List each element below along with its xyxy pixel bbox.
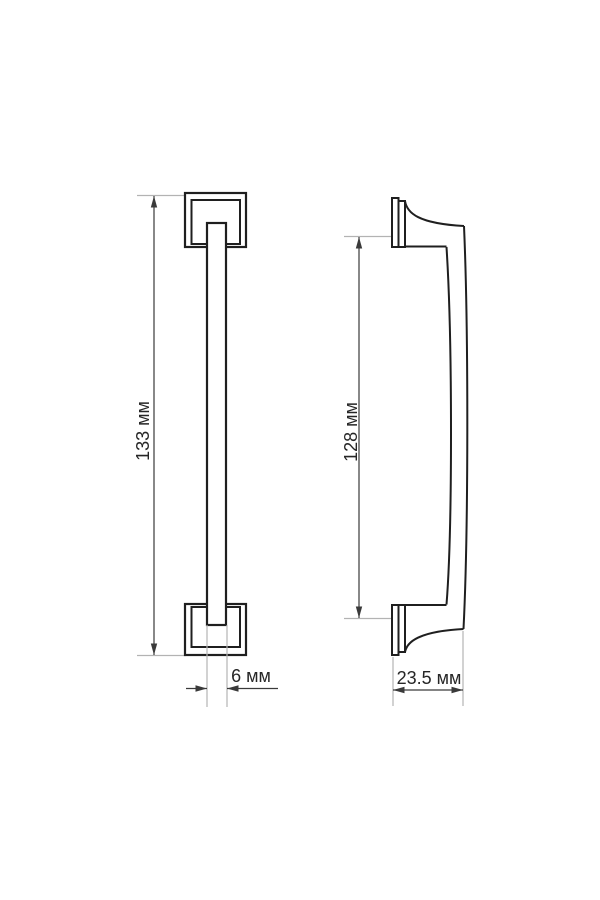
bar-width-dimension-label: 6 мм [231, 666, 271, 686]
height-dimension-label: 133 мм [133, 401, 153, 461]
arrow-right-icon [196, 685, 208, 691]
handle-dimension-drawing: 133 мм 6 мм [0, 0, 600, 900]
height-dimension: 133 мм [133, 196, 186, 656]
handle-bar [207, 223, 226, 625]
side-view: 128 мм [341, 198, 467, 706]
arrow-up-icon [151, 196, 157, 208]
top-cove-curve [405, 201, 464, 226]
handle-profile [392, 198, 467, 655]
span-dimension: 128 мм [341, 237, 392, 619]
depth-dimension-label: 23.5 мм [397, 668, 462, 688]
technical-drawing-canvas: 133 мм 6 мм [0, 0, 600, 900]
inner-edge [447, 247, 452, 605]
bottom-plate-strip-inner [399, 605, 406, 652]
arrow-up-icon [356, 237, 362, 249]
span-dimension-label: 128 мм [341, 402, 361, 462]
arrow-left-icon [227, 685, 239, 691]
arrow-down-icon [356, 607, 362, 619]
arrow-down-icon [151, 644, 157, 656]
bottom-cove-curve [405, 629, 464, 652]
top-plate-strip-inner [399, 201, 406, 247]
outer-edge [464, 226, 468, 629]
front-view: 133 мм 6 мм [133, 193, 278, 707]
